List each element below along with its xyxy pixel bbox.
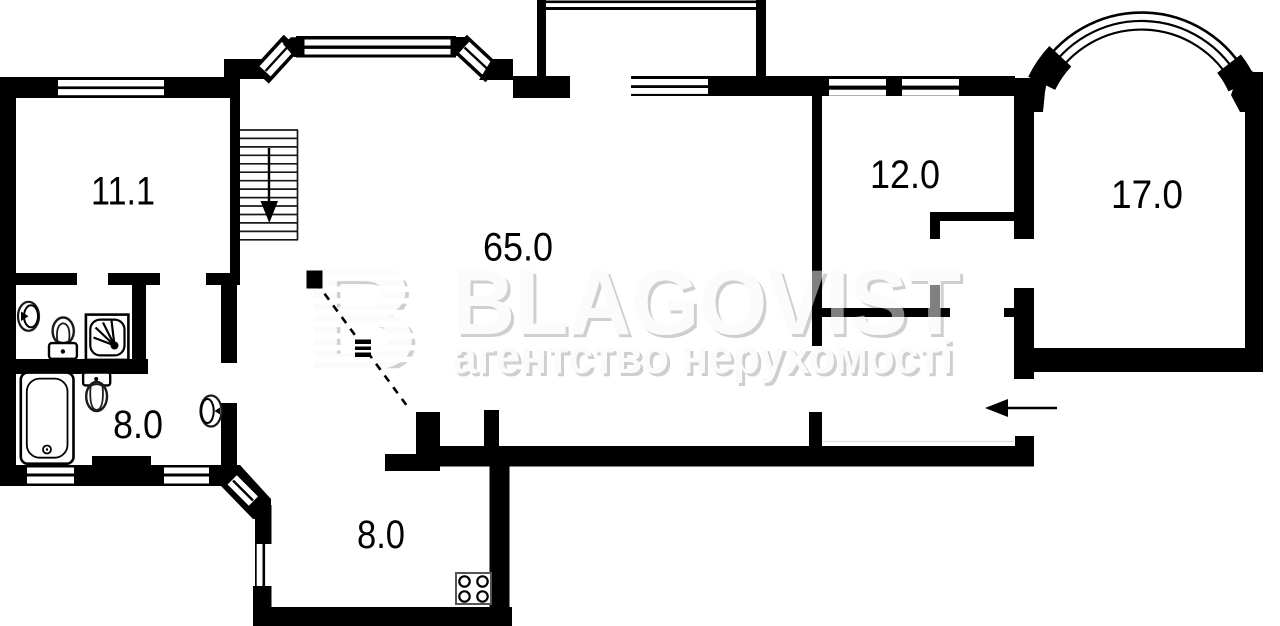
svg-text:B: B [303,232,419,403]
svg-text:агентство нерухомості: агентство нерухомості [452,330,953,383]
svg-text:17.0: 17.0 [1111,173,1183,217]
svg-text:12.0: 12.0 [870,153,940,197]
svg-text:65.0: 65.0 [483,226,553,270]
svg-text:11.1: 11.1 [91,170,155,214]
svg-text:8.0: 8.0 [113,403,163,447]
svg-text:8.0: 8.0 [357,513,405,557]
